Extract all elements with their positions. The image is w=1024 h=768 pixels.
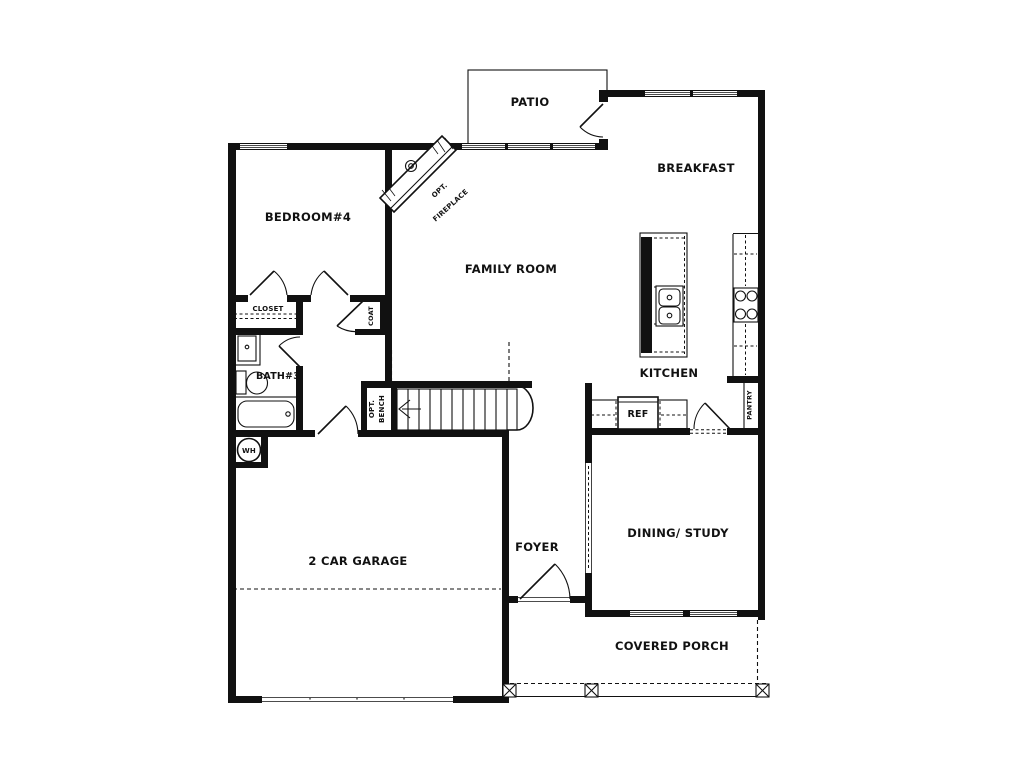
- pantry-label: PANTRY: [746, 390, 754, 420]
- family-room-label: FAMILY ROOM: [465, 262, 557, 276]
- bath-door-swing: [279, 337, 300, 367]
- stairs-top-wall: [361, 381, 532, 388]
- patio-door-swing: [580, 102, 609, 139]
- ref-counter: REF: [590, 397, 687, 429]
- closet-label: CLOSET: [252, 305, 283, 313]
- floor-plan-page: PATIO: [0, 0, 1024, 768]
- stair-treads: [408, 389, 507, 430]
- garage-label: 2 CAR GARAGE: [308, 554, 407, 568]
- bench-left-wall: [361, 381, 367, 437]
- garage-right-wall: [502, 430, 509, 703]
- breakfast-label: BREAKFAST: [657, 161, 735, 175]
- covered-porch: [503, 620, 769, 697]
- kitchen-island: [640, 233, 687, 357]
- kitchen-bottom-wall-right: [727, 428, 765, 435]
- opt-bench-label-2: BENCH: [378, 395, 386, 423]
- kitchen-wall-counter: [733, 234, 758, 377]
- bedroom4-label: BEDROOM#4: [265, 210, 351, 224]
- pantry: PANTRY: [744, 383, 754, 428]
- bathroom-fixtures: BATH#3: [233, 331, 300, 431]
- bathtub: [233, 397, 299, 431]
- porch-post: [503, 684, 516, 697]
- coat-door-swing: [337, 301, 363, 332]
- right-exterior-wall: [758, 90, 765, 620]
- bedroom-closet: CLOSET: [234, 305, 296, 319]
- vanity-sink: [234, 331, 260, 365]
- garage-door: [262, 696, 453, 704]
- dining-study-label: DINING/ STUDY: [627, 526, 729, 540]
- cooktop: [734, 288, 758, 322]
- bedroom-door-swing: [311, 271, 350, 303]
- garage-hall-door-swing: [315, 406, 358, 438]
- patio-outline: PATIO: [468, 70, 607, 144]
- ref-label: REF: [628, 409, 649, 420]
- opt-fireplace-label-1: OPT.: [430, 181, 449, 199]
- pantry-top-wall: [727, 376, 765, 383]
- coat-label: COAT: [367, 306, 375, 326]
- garage: [233, 589, 501, 704]
- pantry-door-swing: [690, 403, 730, 433]
- porch-post: [585, 684, 598, 697]
- water-heater-label: WH: [242, 447, 256, 455]
- opt-bench-label-1: OPT.: [368, 400, 376, 418]
- closet-right-wall: [296, 295, 303, 335]
- double-sink: [656, 286, 683, 326]
- water-heater: WH: [238, 439, 261, 462]
- wh-niche-bottom-wall: [228, 462, 268, 468]
- stair-direction-arrow: [399, 400, 421, 418]
- bath3-label: BATH#3: [256, 371, 300, 382]
- left-exterior-wall: [228, 143, 236, 703]
- bench-right-wall: [391, 388, 397, 437]
- bedroom-window: [240, 144, 287, 149]
- kitchen-label: KITCHEN: [640, 366, 699, 380]
- stair-bullnose: [507, 386, 533, 430]
- covered-porch-label: COVERED PORCH: [615, 639, 729, 653]
- front-door-swing: [518, 564, 570, 604]
- family-room-windows: [462, 144, 595, 149]
- floor-plan-drawing: PATIO: [0, 0, 1024, 768]
- porch-post: [756, 684, 769, 697]
- patio-label: PATIO: [511, 95, 550, 109]
- foyer-label: FOYER: [515, 540, 559, 554]
- coat-bottom-wall: [355, 329, 392, 335]
- closet-door-swing: [248, 271, 287, 303]
- opt-bench: OPT. BENCH: [368, 395, 386, 423]
- dining-cased-opening: [585, 463, 594, 573]
